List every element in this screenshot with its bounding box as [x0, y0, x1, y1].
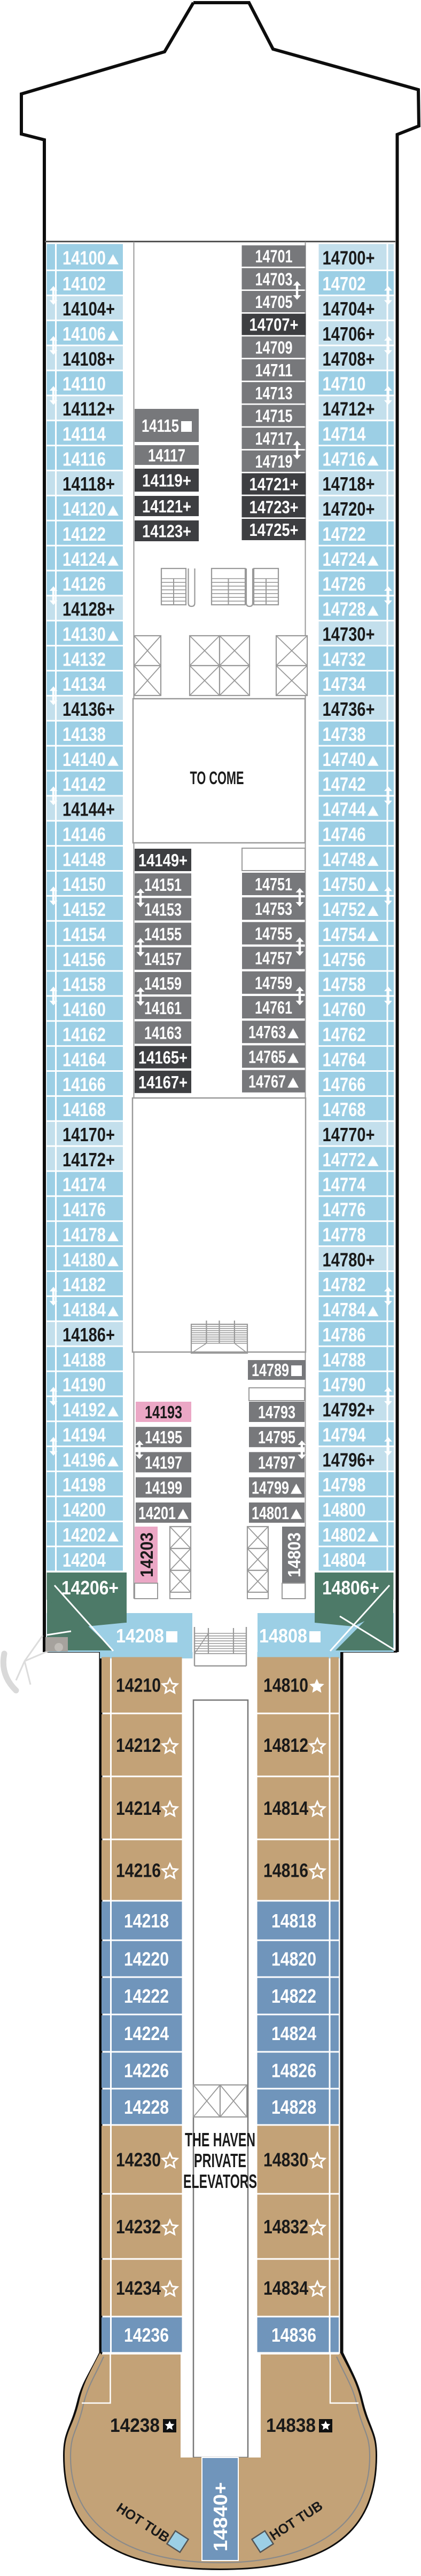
svg-text:14154: 14154: [63, 923, 106, 945]
svg-text:14119+: 14119+: [142, 471, 191, 491]
svg-text:14157: 14157: [144, 949, 182, 969]
svg-text:14824: 14824: [271, 2022, 316, 2044]
svg-text:14151: 14151: [144, 875, 182, 895]
svg-text:14756: 14756: [323, 949, 366, 970]
svg-text:14757: 14757: [255, 949, 292, 968]
svg-text:14801: 14801: [252, 1503, 289, 1523]
svg-text:14754: 14754: [323, 923, 366, 945]
svg-text:14124: 14124: [63, 548, 106, 570]
svg-text:14765: 14765: [248, 1047, 286, 1066]
svg-text:14201: 14201: [138, 1503, 176, 1523]
svg-text:14748: 14748: [323, 848, 366, 870]
svg-text:14216: 14216: [116, 1860, 161, 1882]
svg-text:14161: 14161: [144, 998, 182, 1018]
svg-text:14190: 14190: [63, 1374, 106, 1396]
svg-text:14204: 14204: [63, 1549, 106, 1571]
svg-text:14712+: 14712+: [323, 398, 375, 420]
svg-text:14726: 14726: [323, 573, 366, 595]
svg-text:14702: 14702: [323, 273, 366, 295]
svg-text:14718+: 14718+: [323, 473, 375, 495]
svg-text:14797: 14797: [258, 1452, 295, 1472]
svg-text:14149+: 14149+: [138, 850, 188, 870]
svg-text:14208: 14208: [116, 1625, 164, 1647]
svg-text:14220: 14220: [124, 1948, 169, 1970]
svg-text:14713: 14713: [255, 383, 293, 403]
svg-text:14206+: 14206+: [61, 1577, 119, 1599]
svg-text:14142: 14142: [63, 773, 106, 795]
svg-text:14774: 14774: [323, 1174, 366, 1196]
svg-text:14184: 14184: [63, 1299, 106, 1321]
svg-text:14711: 14711: [255, 360, 293, 380]
svg-text:14767: 14767: [248, 1072, 286, 1092]
svg-text:14763: 14763: [248, 1022, 286, 1042]
svg-text:14238: 14238: [110, 2414, 160, 2436]
svg-text:14744: 14744: [323, 799, 366, 820]
svg-text:14723+: 14723+: [250, 497, 299, 517]
svg-text:14722: 14722: [323, 523, 366, 545]
svg-text:14818: 14818: [271, 1910, 316, 1932]
svg-text:14158: 14158: [63, 974, 106, 995]
svg-text:14186+: 14186+: [63, 1324, 115, 1346]
svg-text:14808: 14808: [259, 1625, 307, 1647]
svg-text:14214: 14214: [116, 1797, 161, 1819]
svg-text:14114: 14114: [63, 423, 106, 445]
svg-text:14108+: 14108+: [63, 348, 115, 370]
svg-text:14721+: 14721+: [250, 475, 299, 494]
svg-text:14198: 14198: [63, 1474, 106, 1496]
svg-text:14802: 14802: [323, 1524, 366, 1546]
svg-text:14762: 14762: [323, 1023, 366, 1045]
svg-text:14834: 14834: [263, 2277, 308, 2299]
svg-text:14732: 14732: [323, 648, 366, 670]
svg-text:14164: 14164: [63, 1048, 106, 1070]
svg-text:14776: 14776: [323, 1199, 366, 1221]
svg-text:14152: 14152: [63, 898, 106, 920]
svg-text:14822: 14822: [271, 1985, 316, 2007]
svg-text:14162: 14162: [63, 1023, 106, 1045]
svg-text:14122: 14122: [63, 523, 106, 545]
svg-text:14810: 14810: [263, 1674, 308, 1696]
svg-text:14100: 14100: [63, 247, 106, 268]
svg-text:14836: 14836: [271, 2324, 316, 2346]
svg-text:14210: 14210: [116, 1674, 161, 1696]
svg-text:14740: 14740: [323, 748, 366, 770]
svg-text:14203: 14203: [137, 1532, 157, 1577]
svg-text:14174: 14174: [63, 1174, 106, 1196]
svg-text:14784: 14784: [323, 1299, 366, 1321]
svg-text:14799: 14799: [252, 1478, 289, 1498]
svg-text:14758: 14758: [323, 974, 366, 995]
svg-text:14750: 14750: [323, 873, 366, 895]
svg-text:14792+: 14792+: [323, 1399, 375, 1421]
svg-text:14725+: 14725+: [250, 520, 299, 540]
svg-text:14770+: 14770+: [323, 1124, 375, 1145]
svg-text:14193: 14193: [145, 1402, 182, 1422]
svg-text:14218: 14218: [124, 1910, 169, 1932]
svg-text:14144+: 14144+: [63, 799, 115, 820]
svg-text:14814: 14814: [263, 1797, 308, 1819]
svg-text:14236: 14236: [124, 2324, 169, 2346]
svg-text:14121+: 14121+: [142, 496, 191, 516]
svg-text:14753: 14753: [255, 899, 292, 919]
svg-text:14182: 14182: [63, 1274, 106, 1295]
svg-text:14742: 14742: [323, 773, 366, 795]
svg-text:14102: 14102: [63, 273, 106, 295]
svg-text:14730+: 14730+: [323, 623, 375, 645]
svg-text:14816: 14816: [263, 1860, 308, 1882]
svg-text:14700+: 14700+: [323, 247, 375, 268]
svg-text:14789: 14789: [252, 1360, 289, 1380]
svg-text:14222: 14222: [124, 1985, 169, 2007]
svg-text:14110: 14110: [63, 373, 106, 395]
svg-text:14794: 14794: [323, 1424, 366, 1445]
svg-text:14196: 14196: [63, 1449, 106, 1471]
svg-text:14759: 14759: [255, 973, 292, 993]
svg-text:ELEVATORS: ELEVATORS: [183, 2170, 257, 2192]
svg-text:14804: 14804: [323, 1549, 366, 1571]
svg-text:14764: 14764: [323, 1048, 366, 1070]
svg-text:14708+: 14708+: [323, 348, 375, 370]
svg-text:14116: 14116: [63, 448, 106, 470]
svg-text:14160: 14160: [63, 999, 106, 1021]
svg-text:14768: 14768: [323, 1099, 366, 1120]
svg-text:14200: 14200: [63, 1499, 106, 1521]
svg-text:14167+: 14167+: [138, 1072, 188, 1092]
svg-text:14155: 14155: [144, 924, 182, 944]
svg-text:14778: 14778: [323, 1223, 366, 1245]
svg-text:14705: 14705: [255, 292, 293, 312]
svg-text:14148: 14148: [63, 848, 106, 870]
svg-text:14138: 14138: [63, 723, 106, 745]
svg-text:14212: 14212: [116, 1734, 161, 1756]
svg-text:14199: 14199: [145, 1478, 182, 1498]
svg-text:14115: 14115: [142, 416, 179, 436]
svg-text:14234: 14234: [116, 2277, 161, 2299]
svg-text:14736+: 14736+: [323, 698, 375, 720]
svg-text:14800: 14800: [323, 1499, 366, 1521]
svg-text:14719: 14719: [255, 452, 293, 471]
svg-text:14782: 14782: [323, 1274, 366, 1295]
svg-text:14178: 14178: [63, 1223, 106, 1245]
svg-text:14117: 14117: [148, 446, 185, 465]
svg-text:14728: 14728: [323, 598, 366, 620]
svg-text:PRIVATE: PRIVATE: [194, 2150, 246, 2171]
svg-text:14226: 14226: [124, 2060, 169, 2082]
svg-text:14150: 14150: [63, 873, 106, 895]
svg-text:14120: 14120: [63, 498, 106, 520]
svg-text:14720+: 14720+: [323, 498, 375, 520]
svg-text:14706+: 14706+: [323, 323, 375, 345]
svg-text:14772: 14772: [323, 1149, 366, 1171]
svg-text:14716: 14716: [323, 448, 366, 470]
svg-text:14714: 14714: [323, 423, 366, 445]
svg-text:14715: 14715: [255, 406, 293, 426]
svg-text:14755: 14755: [255, 923, 292, 943]
svg-text:14820: 14820: [271, 1948, 316, 1970]
svg-text:14172+: 14172+: [63, 1149, 115, 1171]
svg-text:14795: 14795: [258, 1427, 295, 1447]
svg-text:14832: 14832: [263, 2216, 308, 2238]
svg-text:14159: 14159: [144, 974, 182, 993]
svg-text:14156: 14156: [63, 949, 106, 970]
svg-text:14703: 14703: [255, 269, 293, 289]
svg-text:14738: 14738: [323, 723, 366, 745]
svg-text:14793: 14793: [258, 1402, 295, 1422]
svg-text:14796+: 14796+: [323, 1449, 375, 1471]
svg-text:14188: 14188: [63, 1349, 106, 1371]
svg-text:14202: 14202: [63, 1524, 106, 1546]
svg-text:14752: 14752: [323, 898, 366, 920]
svg-text:14710: 14710: [323, 373, 366, 395]
svg-text:14180: 14180: [63, 1249, 106, 1270]
svg-text:14118+: 14118+: [63, 473, 115, 495]
svg-text:14707+: 14707+: [250, 315, 299, 335]
svg-text:14194: 14194: [63, 1424, 106, 1445]
svg-text:14153: 14153: [144, 899, 182, 919]
svg-text:14838: 14838: [266, 2414, 316, 2436]
svg-text:14168: 14168: [63, 1099, 106, 1120]
svg-text:14176: 14176: [63, 1199, 106, 1221]
svg-text:14106: 14106: [63, 323, 106, 345]
svg-text:14709: 14709: [255, 337, 293, 357]
svg-text:THE HAVEN: THE HAVEN: [185, 2129, 255, 2151]
svg-text:14165+: 14165+: [138, 1048, 188, 1068]
svg-text:14780+: 14780+: [323, 1249, 375, 1270]
svg-text:14170+: 14170+: [63, 1124, 115, 1145]
svg-text:14826: 14826: [271, 2060, 316, 2082]
svg-text:14803: 14803: [284, 1532, 304, 1577]
svg-text:14812: 14812: [263, 1734, 308, 1756]
svg-text:TO COME: TO COME: [190, 768, 244, 788]
svg-text:14195: 14195: [145, 1427, 182, 1447]
svg-text:14128+: 14128+: [63, 598, 115, 620]
svg-text:14761: 14761: [255, 998, 292, 1017]
svg-text:14724: 14724: [323, 548, 366, 570]
svg-text:14224: 14224: [124, 2022, 169, 2044]
svg-text:14232: 14232: [116, 2216, 161, 2238]
svg-text:14830: 14830: [263, 2149, 308, 2171]
svg-text:14197: 14197: [145, 1452, 182, 1472]
svg-text:14123+: 14123+: [142, 521, 191, 541]
svg-text:14166: 14166: [63, 1073, 106, 1095]
svg-text:14192: 14192: [63, 1399, 106, 1421]
svg-text:14828: 14828: [271, 2096, 316, 2118]
svg-text:14734: 14734: [323, 673, 366, 695]
svg-text:14104+: 14104+: [63, 298, 115, 320]
svg-text:14132: 14132: [63, 648, 106, 670]
svg-text:14701: 14701: [255, 247, 293, 266]
svg-text:14788: 14788: [323, 1349, 366, 1371]
svg-text:14163: 14163: [144, 1023, 182, 1042]
svg-text:14126: 14126: [63, 573, 106, 595]
svg-text:14717: 14717: [255, 429, 293, 448]
svg-text:14704+: 14704+: [323, 298, 375, 320]
svg-text:14130: 14130: [63, 623, 106, 645]
svg-text:14840+: 14840+: [209, 2482, 231, 2551]
svg-text:14134: 14134: [63, 673, 106, 695]
svg-text:14798: 14798: [323, 1474, 366, 1496]
svg-text:14746: 14746: [323, 823, 366, 845]
svg-text:14228: 14228: [124, 2096, 169, 2118]
svg-text:14786: 14786: [323, 1324, 366, 1346]
svg-text:14751: 14751: [255, 874, 292, 894]
svg-text:14140: 14140: [63, 748, 106, 770]
svg-text:14230: 14230: [116, 2149, 161, 2171]
svg-text:14112+: 14112+: [63, 398, 115, 420]
svg-text:14790: 14790: [323, 1374, 366, 1396]
svg-text:14136+: 14136+: [63, 698, 115, 720]
svg-text:14806+: 14806+: [322, 1577, 379, 1599]
svg-text:14146: 14146: [63, 823, 106, 845]
svg-text:14766: 14766: [323, 1073, 366, 1095]
svg-text:14760: 14760: [323, 999, 366, 1021]
